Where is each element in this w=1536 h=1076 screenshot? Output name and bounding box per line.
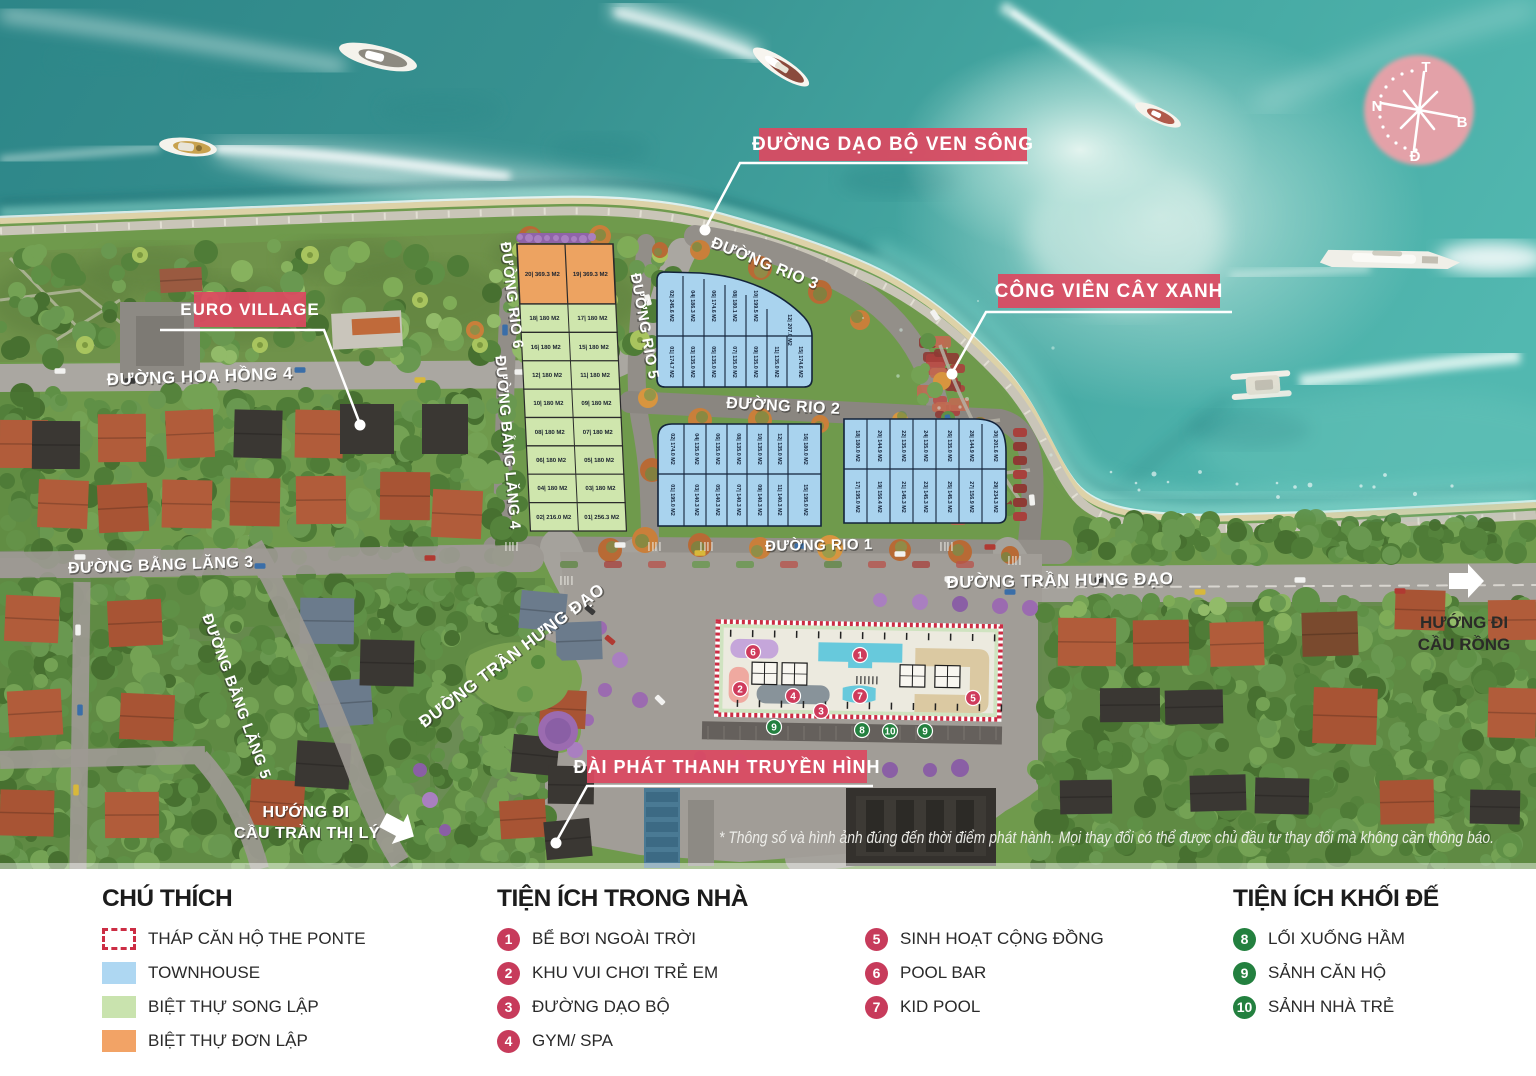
svg-text:27| 156.9 M2: 27| 156.9 M2 [968,481,974,512]
svg-text:04| 135.0 M2: 04| 135.0 M2 [693,433,699,464]
svg-text:11| 135.0 M2: 11| 135.0 M2 [773,346,779,377]
svg-text:25| 145.3 M2: 25| 145.3 M2 [946,481,952,512]
svg-text:10| 135.0 M2: 10| 135.0 M2 [756,433,762,464]
svg-text:28| 144.9 M2: 28| 144.9 M2 [968,430,974,461]
svg-text:20| 369.3 M2: 20| 369.3 M2 [525,272,561,278]
svg-text:B: B [1457,114,1468,131]
svg-text:3: 3 [818,707,824,718]
svg-text:29| 234.3 M2: 29| 234.3 M2 [992,481,998,512]
svg-text:21| 145.3 M2: 21| 145.3 M2 [900,481,906,512]
svg-text:22| 135.0 M2: 22| 135.0 M2 [900,430,906,461]
svg-text:01| 256.3 M2: 01| 256.3 M2 [584,515,620,521]
svg-text:CẦU RỒNG: CẦU RỒNG [1418,635,1511,654]
svg-text:07| 140.3 M2: 07| 140.3 M2 [735,484,741,515]
svg-text:ĐÀI PHÁT THANH TRUYỀN HÌNH: ĐÀI PHÁT THANH TRUYỀN HÌNH [574,756,881,777]
svg-text:06| 180 M2: 06| 180 M2 [536,458,567,464]
svg-text:15| 195.0 M2: 15| 195.0 M2 [802,484,808,515]
svg-text:07| 135.0 M2: 07| 135.0 M2 [731,346,737,377]
svg-text:T: T [1421,59,1430,76]
svg-text:9: 9 [922,727,928,738]
svg-text:EURO VILLAGE: EURO VILLAGE [180,300,320,319]
svg-text:11| 180 M2: 11| 180 M2 [580,373,611,379]
svg-text:15| 174.6 M2: 15| 174.6 M2 [797,346,803,377]
svg-text:08| 180.1 M2: 08| 180.1 M2 [731,290,737,321]
svg-text:23| 145.3 M2: 23| 145.3 M2 [922,481,928,512]
svg-text:* Thông số và hình ảnh đúng đế: * Thông số và hình ảnh đúng đến thời điể… [719,829,1494,847]
svg-text:26| 135.0 M2: 26| 135.0 M2 [946,430,952,461]
svg-text:01| 195.0 M2: 01| 195.0 M2 [669,484,675,515]
svg-text:19| 369.3 M2: 19| 369.3 M2 [573,272,609,278]
svg-text:N: N [1372,98,1383,115]
svg-text:10| 199.5 M2: 10| 199.5 M2 [752,290,758,321]
svg-text:12| 180 M2: 12| 180 M2 [532,373,563,379]
svg-text:HƯỚNG ĐI: HƯỚNG ĐI [263,802,350,821]
svg-text:10: 10 [884,727,896,738]
svg-text:09| 140.3 M2: 09| 140.3 M2 [756,484,762,515]
svg-text:11| 140.3 M2: 11| 140.3 M2 [776,484,782,515]
svg-text:17| 195.0 M2: 17| 195.0 M2 [854,481,860,512]
svg-text:5: 5 [970,694,976,705]
svg-text:04| 186.3 M2: 04| 186.3 M2 [689,290,695,321]
svg-text:CẦU TRẦN THỊ LÝ: CẦU TRẦN THỊ LÝ [234,823,380,842]
svg-text:02| 245.6 M2: 02| 245.6 M2 [668,290,674,321]
svg-text:02| 216.0 M2: 02| 216.0 M2 [536,515,572,521]
svg-text:05| 180 M2: 05| 180 M2 [584,458,615,464]
svg-text:18| 180.0 M2: 18| 180.0 M2 [854,430,860,461]
svg-text:ĐƯỜNG TRẦN HƯNG ĐẠO: ĐƯỜNG TRẦN HƯNG ĐẠO [946,569,1173,592]
svg-text:06| 135.0 M2: 06| 135.0 M2 [714,433,720,464]
svg-text:16| 180 M2: 16| 180 M2 [531,345,562,351]
svg-text:06| 174.6 M2: 06| 174.6 M2 [710,290,716,321]
svg-text:6: 6 [750,648,756,659]
svg-text:ĐƯỜNG DẠO BỘ VEN SÔNG: ĐƯỜNG DẠO BỘ VEN SÔNG [752,133,1034,155]
svg-text:8: 8 [859,726,865,737]
svg-text:1: 1 [857,651,863,662]
svg-text:12| 135.0 M2: 12| 135.0 M2 [776,433,782,464]
svg-text:16| 180.0 M2: 16| 180.0 M2 [802,433,808,464]
svg-text:15| 180 M2: 15| 180 M2 [579,345,610,351]
svg-text:10| 180 M2: 10| 180 M2 [533,401,564,407]
svg-text:03| 140.3 M2: 03| 140.3 M2 [693,484,699,515]
svg-text:08| 180 M2: 08| 180 M2 [535,430,566,436]
svg-text:CÔNG VIÊN CÂY XANH: CÔNG VIÊN CÂY XANH [995,280,1224,302]
svg-text:03| 180 M2: 03| 180 M2 [585,486,616,492]
svg-text:03| 135.0 M2: 03| 135.0 M2 [689,346,695,377]
svg-text:18| 180 M2: 18| 180 M2 [529,316,560,322]
svg-text:08| 135.0 M2: 08| 135.0 M2 [735,433,741,464]
svg-text:4: 4 [790,692,796,703]
svg-text:HƯỚNG ĐI: HƯỚNG ĐI [1420,613,1508,632]
svg-text:05| 135.0 M2: 05| 135.0 M2 [710,346,716,377]
svg-text:01| 174.7 M2: 01| 174.7 M2 [668,346,674,377]
svg-text:2: 2 [737,685,743,696]
svg-text:ĐƯỜNG RIO 1: ĐƯỜNG RIO 1 [765,535,873,555]
svg-text:24| 135.0 M2: 24| 135.0 M2 [922,430,928,461]
svg-text:30| 201.6 M2: 30| 201.6 M2 [992,430,998,461]
svg-text:7: 7 [857,692,863,703]
svg-text:09| 135.0 M2: 09| 135.0 M2 [752,346,758,377]
svg-text:12| 207.0 M2: 12| 207.0 M2 [786,314,792,345]
svg-text:05| 140.3 M2: 05| 140.3 M2 [714,484,720,515]
svg-text:09| 180 M2: 09| 180 M2 [581,401,612,407]
svg-text:9: 9 [771,723,777,734]
svg-text:04| 180 M2: 04| 180 M2 [537,486,568,492]
svg-text:19| 156.4 M2: 19| 156.4 M2 [876,481,882,512]
svg-text:20| 144.9 M2: 20| 144.9 M2 [876,430,882,461]
svg-text:17| 180 M2: 17| 180 M2 [577,316,608,322]
svg-text:07| 180 M2: 07| 180 M2 [583,430,614,436]
svg-text:02| 174.0 M2: 02| 174.0 M2 [669,433,675,464]
